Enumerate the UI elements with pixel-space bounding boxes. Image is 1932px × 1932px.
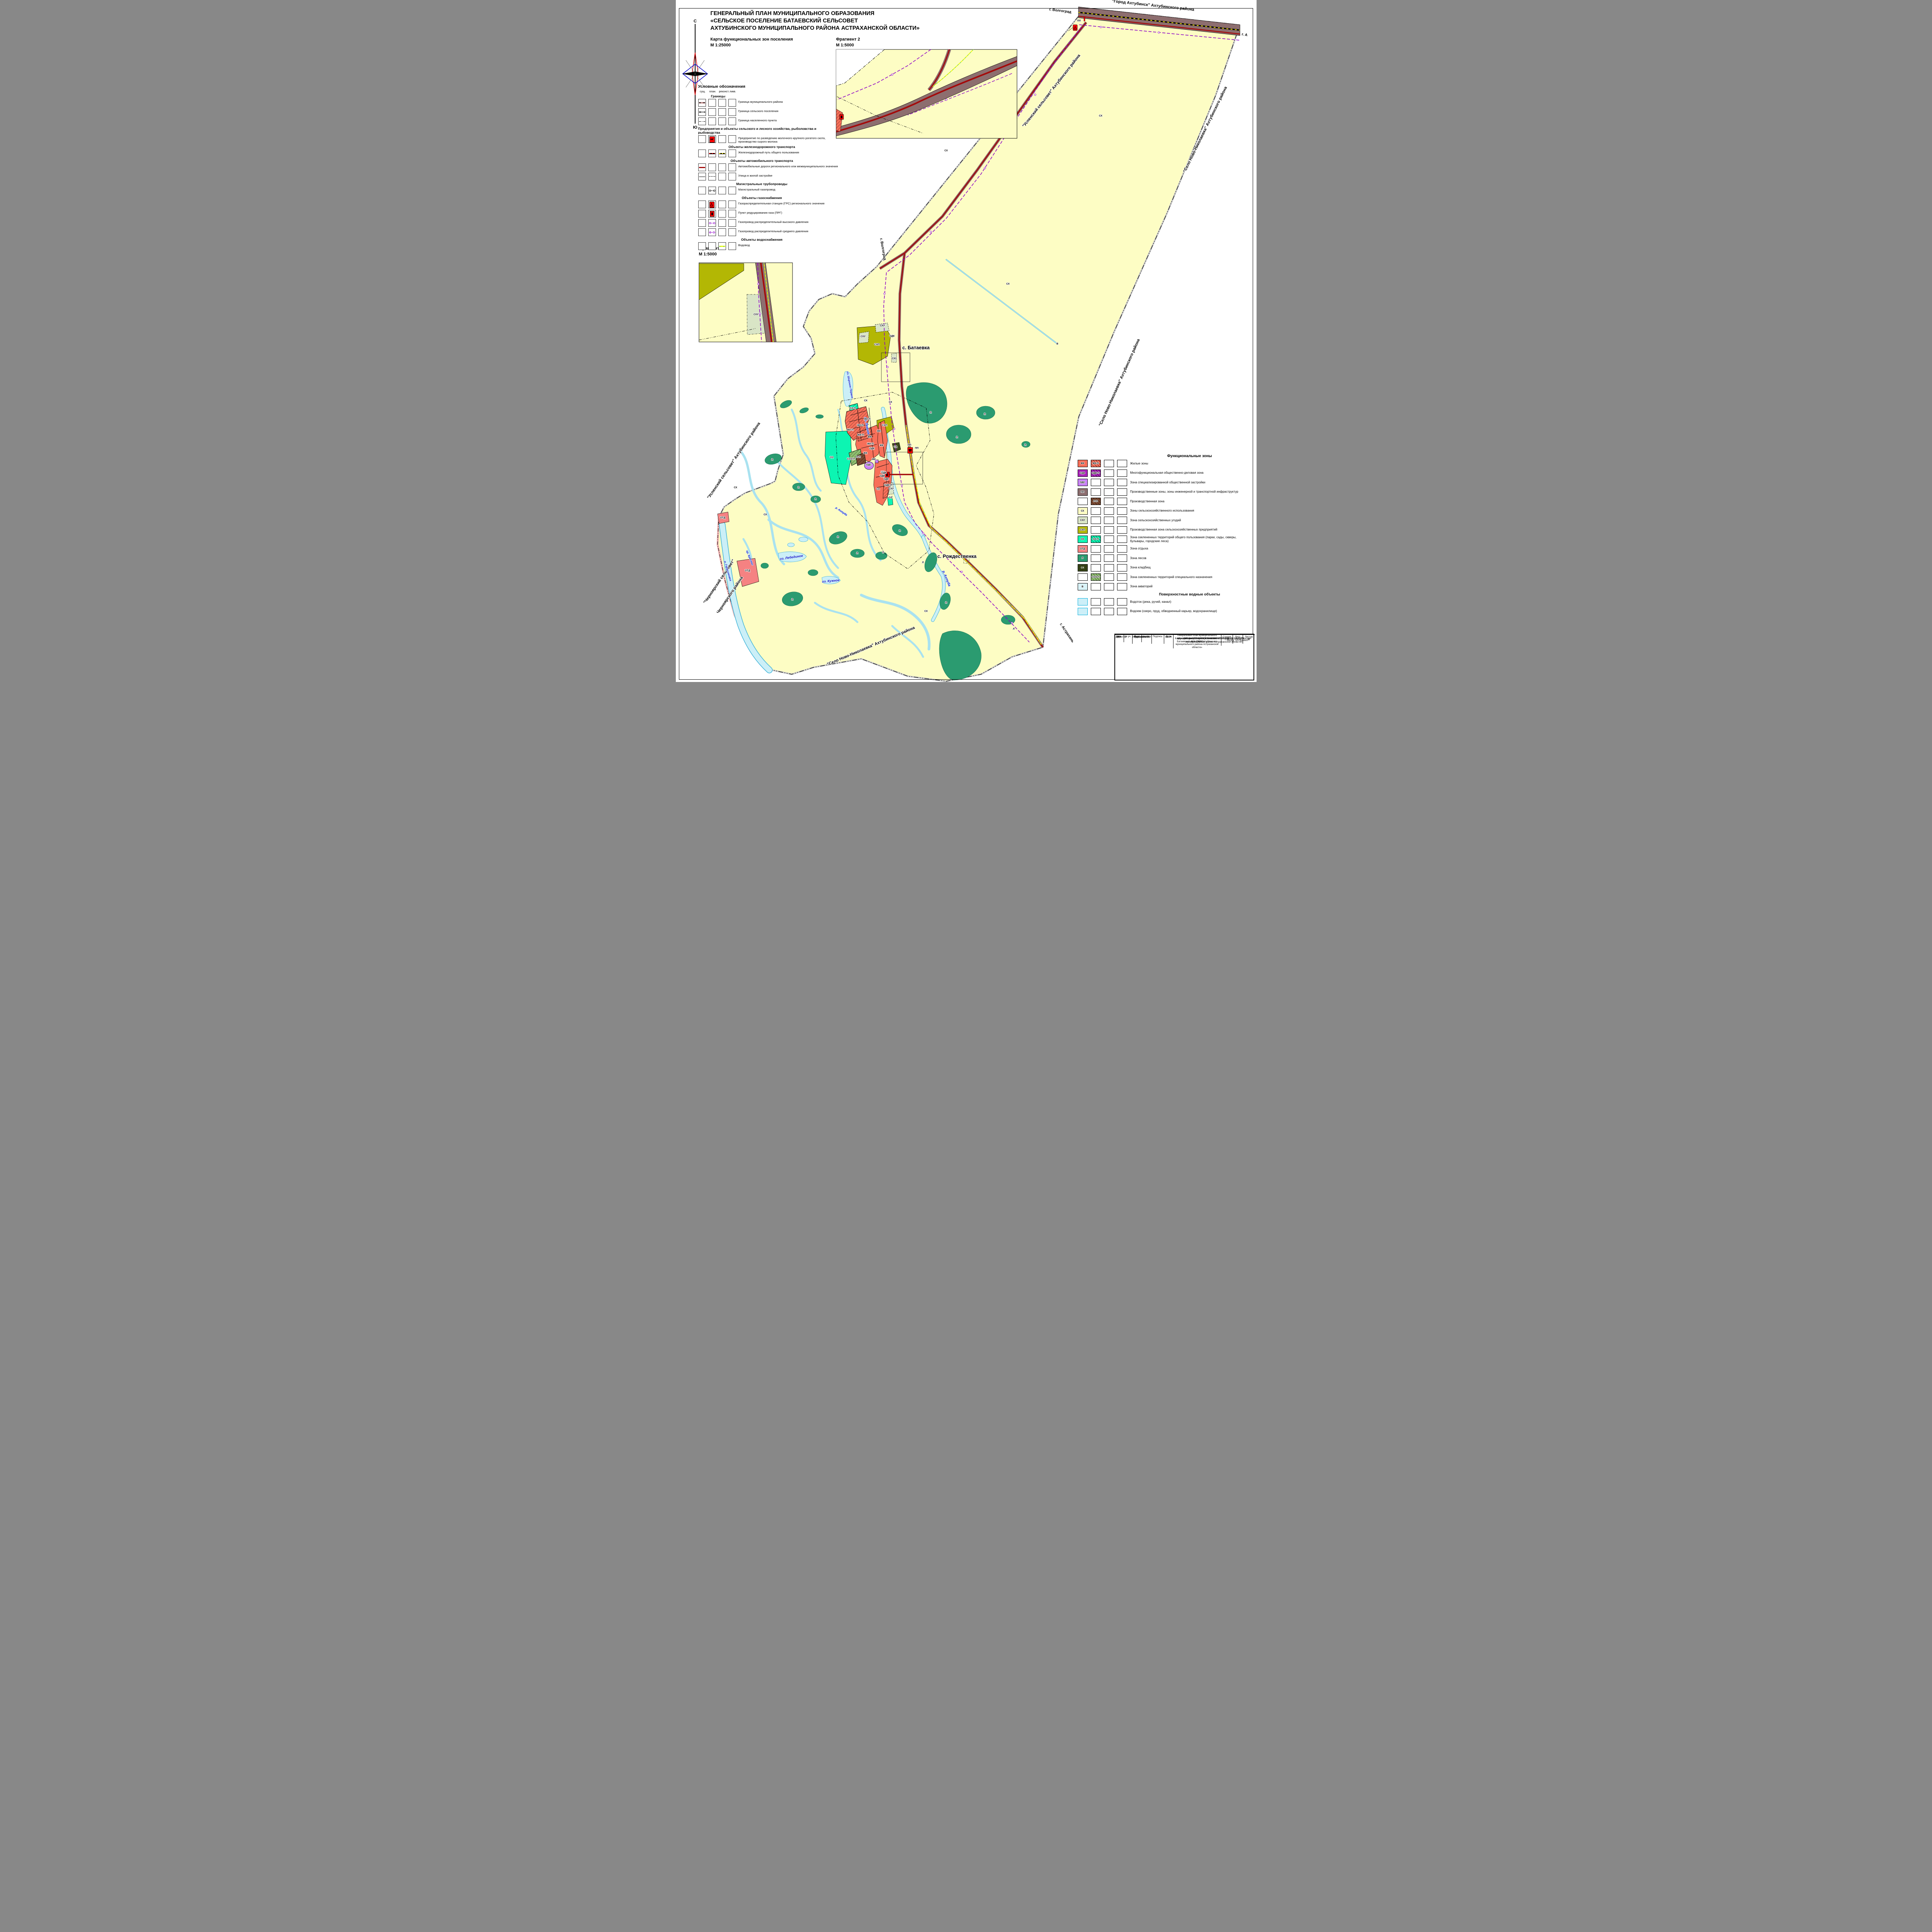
legend-swatch [708, 201, 716, 208]
legend-row: Пункт редуцирования газа (ПРГ) [698, 210, 841, 218]
legend-section-pipe: Магистральные трубопроводы [698, 182, 826, 186]
zone-swatch-plan: ОЗ-П [1091, 536, 1101, 543]
zone-label: Зоны сельскохозяйственного использования [1130, 509, 1246, 512]
zone-swatch-plan: ЖК-П [1091, 460, 1101, 467]
zone-swatch-empty [1117, 573, 1127, 581]
legend-col-susch: сущ. [699, 90, 707, 93]
legend-swatch [728, 228, 736, 236]
zone-swatch: ПП [1078, 488, 1088, 496]
legend-swatch [708, 219, 716, 227]
zone-label: Производственные зоны, зоны инженерной и… [1130, 490, 1246, 493]
legend-row: Граница населенного пункта [698, 117, 841, 125]
legend-swatch [708, 210, 716, 218]
legend-swatch [708, 187, 716, 194]
legend-swatch [728, 173, 736, 180]
legend-swatch [708, 150, 716, 157]
water-swatch [1078, 598, 1088, 605]
legend-swatch [708, 242, 716, 250]
zone-label: Зона отдыха [1130, 547, 1246, 550]
legend-label: Газораспределительная станция (ГРС) реги… [738, 201, 825, 205]
legend-section-water: Объекты водоснабжения [698, 238, 826, 241]
legend-columns: сущ. план. реконст. ликв. [699, 90, 841, 93]
legend-swatch [728, 99, 736, 107]
legend-section-agro: Предприятия и объекты сельского и лесног… [698, 127, 826, 134]
zone-swatch-empty [1091, 564, 1101, 571]
zone-swatch: ОТД [1078, 545, 1088, 553]
zones-legend-title: Функциональные зоны [1132, 454, 1248, 458]
legend-swatch [698, 242, 706, 250]
fragment1-scale: М 1:5000 [699, 252, 723, 257]
zone-row: ОДС Зона специализированной общественной… [1078, 479, 1255, 486]
zone-swatch: Л [1078, 554, 1088, 562]
zone-swatch-plan: СОЗ-П [1091, 573, 1101, 581]
zone-label: Многофункциональная общественно-деловая … [1130, 471, 1246, 474]
legend-swatch [718, 173, 726, 180]
legend-label: Газопровод распределительный среднего да… [738, 228, 808, 233]
legend-swatch [728, 201, 736, 208]
zone-swatch-empty [1091, 608, 1101, 615]
zone-swatch-empty [1117, 498, 1127, 505]
zone-swatch: СК [1078, 564, 1088, 571]
zone-swatch-empty [1091, 507, 1101, 515]
water-swatch [1078, 608, 1088, 615]
legend-swatch [708, 108, 716, 116]
zone-swatch-plan: П-П [1091, 498, 1101, 505]
legend-swatch [698, 173, 706, 180]
legend-title: Условные обозначения [698, 84, 841, 89]
zone-swatch: ОДС [1078, 479, 1088, 486]
zone-swatch: ЖК [1078, 460, 1088, 467]
legend-label: Автомобильные дороги регионального или м… [738, 163, 838, 168]
zone-swatch-empty [1104, 498, 1114, 505]
legend-label: Водовод [738, 242, 750, 247]
compass-south: Ю [693, 125, 697, 130]
zone-label: Водоток (река, ручей, канал) [1130, 600, 1246, 604]
grs-icon [709, 202, 714, 208]
legend-swatch [728, 187, 736, 194]
zone-label: Зона специализированной общественной зас… [1130, 481, 1246, 484]
zone-swatch-empty [1104, 564, 1114, 571]
title-line1: ГЕНЕРАЛЬНЫЙ ПЛАН МУНИЦИПАЛЬНОГО ОБРАЗОВА… [711, 10, 920, 17]
legend-swatch [708, 173, 716, 180]
zone-swatch: СХУ [1078, 517, 1088, 524]
legend-section-gas: Объекты газоснабжения [698, 196, 826, 200]
legend-swatch [728, 210, 736, 218]
legend-row: Газораспределительная станция (ГРС) реги… [698, 201, 841, 208]
stamp-doc-line1: Карта функциональных зон поселения [1175, 637, 1219, 640]
stamp-doc: Карта функциональных зон поселения М 1:2… [1173, 634, 1221, 646]
legend-row: Железнодорожный путь общего пользования [698, 150, 841, 157]
legend-swatch [718, 219, 726, 227]
zone-row: СОЗ-П Зона озелененных территорий специа… [1078, 573, 1255, 581]
legend-swatch [728, 108, 736, 116]
zone-row: Водоем (озеро, пруд, обводненный карьер,… [1078, 608, 1255, 615]
fragment2-name: Фрагмент 2 [836, 37, 860, 43]
legend-label: Улица в жилой застройке [738, 173, 772, 177]
surface-water-header: Поверхностные водные объекты [1132, 592, 1248, 597]
page-title: ГЕНЕРАЛЬНЫЙ ПЛАН МУНИЦИПАЛЬНОГО ОБРАЗОВА… [711, 10, 920, 32]
zone-label: Зона акваторий [1130, 585, 1246, 588]
zone-row: П-П Производственная зона [1078, 498, 1255, 505]
legend-col-rekonst: реконст. [719, 90, 727, 93]
prg-icon [885, 472, 889, 477]
zone-label: Производственная зона [1130, 500, 1246, 503]
legend-swatch [698, 228, 706, 236]
title-block: Изм. № уч. Лист № док. Подпись Дата Дире… [1114, 634, 1254, 680]
legend-swatch [728, 163, 736, 171]
legend-swatch [718, 201, 726, 208]
zone-swatch-empty [1091, 598, 1101, 605]
legend-swatch [698, 163, 706, 171]
legend-swatch [698, 150, 706, 157]
legend-swatch [698, 117, 706, 125]
legend: Условные обозначения сущ. план. реконст.… [698, 84, 841, 252]
map-sheet: "Город Ахтубинск" Ахтубинского района"Ус… [676, 0, 1257, 682]
cattle-farm-icon [908, 447, 913, 453]
zone-swatch-empty [1117, 488, 1127, 496]
legend-row: Автомобильные дороги регионального или м… [698, 163, 841, 171]
legend-swatch [698, 135, 706, 143]
zone-swatch-empty [1117, 507, 1127, 515]
zone-swatch-empty [1104, 469, 1114, 477]
legend-label: Пункт редуцирования газа (ПРГ) [738, 210, 782, 214]
zone-swatch-empty [1117, 598, 1127, 605]
legend-swatch [718, 228, 726, 236]
zone-swatch-empty [1104, 583, 1114, 590]
zone-swatch-empty [1104, 479, 1114, 486]
zone-swatch-empty [1104, 460, 1114, 467]
legend-swatch [708, 228, 716, 236]
fragment2-title: Фрагмент 2 М 1:5000 [836, 37, 860, 48]
zone-row: Водоток (река, ручей, канал) [1078, 598, 1255, 605]
legend-swatch [718, 135, 726, 143]
legend-label: Газопровод распределительный высокого да… [738, 219, 809, 224]
map-subtitle-line1: Карта функциональных зон поселения [711, 37, 793, 43]
prg-icon [710, 211, 714, 217]
legend-swatch [698, 99, 706, 107]
zone-swatch-empty [1091, 545, 1101, 553]
legend-row: Газопровод распределительный среднего да… [698, 228, 841, 236]
zone-label: Зона озелененных территорий специального… [1130, 575, 1246, 579]
zone-swatch-plan: ОДК-П [1091, 469, 1101, 477]
legend-swatch [718, 187, 726, 194]
legend-col-likv: ликв. [729, 90, 737, 93]
zone-swatch-empty [1078, 498, 1088, 505]
legend-col-plan: план. [709, 90, 717, 93]
legend-swatch [718, 150, 726, 157]
legend-label: Граница муниципального района [738, 99, 783, 104]
zone-swatch-empty [1104, 507, 1114, 515]
zone-row: В Зона акваторий [1078, 583, 1255, 590]
legend-swatch [728, 219, 736, 227]
zone-swatch-empty [1091, 479, 1101, 486]
zone-label: Зона озелененных территорий общего польз… [1130, 536, 1246, 543]
zone-swatch-empty [1117, 554, 1127, 562]
legend-section-auto: Объекты автомобильного транспорта [698, 159, 826, 163]
legend-swatch [698, 108, 706, 116]
legend-swatch [718, 99, 726, 107]
legend-swatch [708, 163, 716, 171]
legend-swatch [698, 201, 706, 208]
zone-swatch-empty [1104, 545, 1114, 553]
stamp-org: ООО "С-Проект" [1221, 634, 1255, 646]
legend-row: Водовод [698, 242, 841, 250]
title-line3: АХТУБИНСКОГО МУНИЦИПАЛЬНОГО РАЙОНА АСТРА… [711, 25, 920, 32]
zone-swatch-empty [1078, 573, 1088, 581]
zone-swatch: В [1078, 583, 1088, 590]
zone-row: СХ Зоны сельскохозяйственного использова… [1078, 507, 1255, 515]
zone-row: ЖК ЖК-П Жилые зоны [1078, 460, 1255, 467]
zone-swatch-empty [1104, 598, 1114, 605]
zone-swatch-empty [1117, 583, 1127, 590]
zone-row: СХУ Зона сельскохозяйственных угодий [1078, 517, 1255, 524]
zone-swatch-empty [1104, 526, 1114, 534]
zone-label: Жилые зоны [1130, 462, 1246, 465]
zone-row: ПП Производственные зоны, зоны инженерно… [1078, 488, 1255, 496]
map-subtitle: Карта функциональных зон поселения М 1:2… [711, 37, 793, 48]
zone-swatch: СХ [1078, 507, 1088, 515]
legend-swatch [728, 150, 736, 157]
zone-label: Производственная зона сельскохозяйственн… [1130, 528, 1246, 531]
zone-row: ОДК ОДК-П Многофункциональная общественн… [1078, 469, 1255, 477]
zone-swatch-empty [1104, 554, 1114, 562]
zones-legend: Функциональные зоны ЖК ЖК-П Жилые зоны О… [1078, 454, 1255, 617]
legend-swatch [708, 117, 716, 125]
legend-swatch [698, 187, 706, 194]
legend-label: Граница населенного пункта [738, 117, 777, 122]
fragment2-inset [836, 49, 1017, 138]
stamp-doc-line2: М 1:25000 [1191, 640, 1203, 643]
zone-swatch: ОДК [1078, 469, 1088, 477]
zone-row: ОТД Зона отдыха [1078, 545, 1255, 553]
legend-swatch [718, 163, 726, 171]
zone-swatch-empty [1104, 573, 1114, 581]
zone-swatch-empty [1091, 554, 1101, 562]
legend-section-rail: Объекты железнодорожного транспорта [698, 145, 826, 149]
title-line2: «СЕЛЬСКОЕ ПОСЕЛЕНИЕ БАТАЕВСКИЙ СЕЛЬСОВЕТ [711, 17, 920, 25]
legend-swatch [708, 135, 716, 143]
legend-swatch [728, 242, 736, 250]
zone-swatch-empty [1117, 564, 1127, 571]
legend-label: Граница сельского поселения [738, 108, 779, 113]
zone-swatch-empty [1104, 608, 1114, 615]
zone-row: Л Зона лесов [1078, 554, 1255, 562]
legend-row: Предприятие по разведению молочного круп… [698, 135, 841, 143]
cow-icon [709, 136, 715, 143]
zone-label: Водоем (озеро, пруд, обводненный карьер,… [1130, 609, 1246, 613]
legend-row: Магистральный газопровод [698, 187, 841, 194]
legend-swatch [718, 108, 726, 116]
zone-swatch-empty [1117, 536, 1127, 543]
legend-label: Предприятие по разведению молочного круп… [738, 135, 841, 143]
legend-swatch [718, 210, 726, 218]
zone-swatch-empty [1117, 469, 1127, 477]
zone-row: ОЗ ОЗ-П Зона озелененных территорий обще… [1078, 536, 1255, 543]
zone-swatch-empty [1117, 545, 1127, 553]
zone-swatch-empty [1091, 488, 1101, 496]
zone-label: Зона кладбищ [1130, 566, 1246, 569]
legend-label: Магистральный газопровод [738, 187, 776, 191]
zone-row: СХП Производственная зона сельскохозяйст… [1078, 526, 1255, 534]
zone-swatch-empty [1091, 517, 1101, 524]
legend-row: Граница муниципального района [698, 99, 841, 107]
zone-swatch: СХП [1078, 526, 1088, 534]
legend-row: Граница сельского поселения [698, 108, 841, 116]
zone-swatch-empty [1091, 583, 1101, 590]
zone-swatch-empty [1104, 536, 1114, 543]
legend-swatch [728, 135, 736, 143]
legend-swatch [698, 210, 706, 218]
zone-swatch-empty [1117, 517, 1127, 524]
zone-label: Зона сельскохозяйственных угодий [1130, 519, 1246, 522]
legend-swatch [718, 242, 726, 250]
legend-swatch [718, 117, 726, 125]
zone-swatch-empty [1117, 608, 1127, 615]
zone-swatch: ОЗ [1078, 536, 1088, 543]
legend-section-borders: Границы [698, 94, 738, 98]
zone-swatch-empty [1104, 517, 1114, 524]
fragment2-scale: М 1:5000 [836, 43, 860, 48]
legend-swatch [728, 117, 736, 125]
map-subtitle-scale: М 1:25000 [711, 43, 793, 48]
zone-swatch-empty [1091, 526, 1101, 534]
zone-swatch-empty [1117, 526, 1127, 534]
legend-swatch [698, 219, 706, 227]
legend-swatch [708, 99, 716, 107]
zone-swatch-empty [1104, 488, 1114, 496]
legend-label: Железнодорожный путь общего пользования [738, 150, 799, 154]
zone-row: СК Зона кладбищ [1078, 564, 1255, 571]
zone-swatch-empty [1117, 460, 1127, 467]
zone-swatch-empty [1117, 479, 1127, 486]
fragment1-inset [699, 263, 793, 342]
legend-row: Улица в жилой застройке [698, 173, 841, 180]
compass-north: С [694, 19, 697, 24]
legend-row: Газопровод распределительный высокого да… [698, 219, 841, 227]
zone-label: Зона лесов [1130, 556, 1246, 560]
